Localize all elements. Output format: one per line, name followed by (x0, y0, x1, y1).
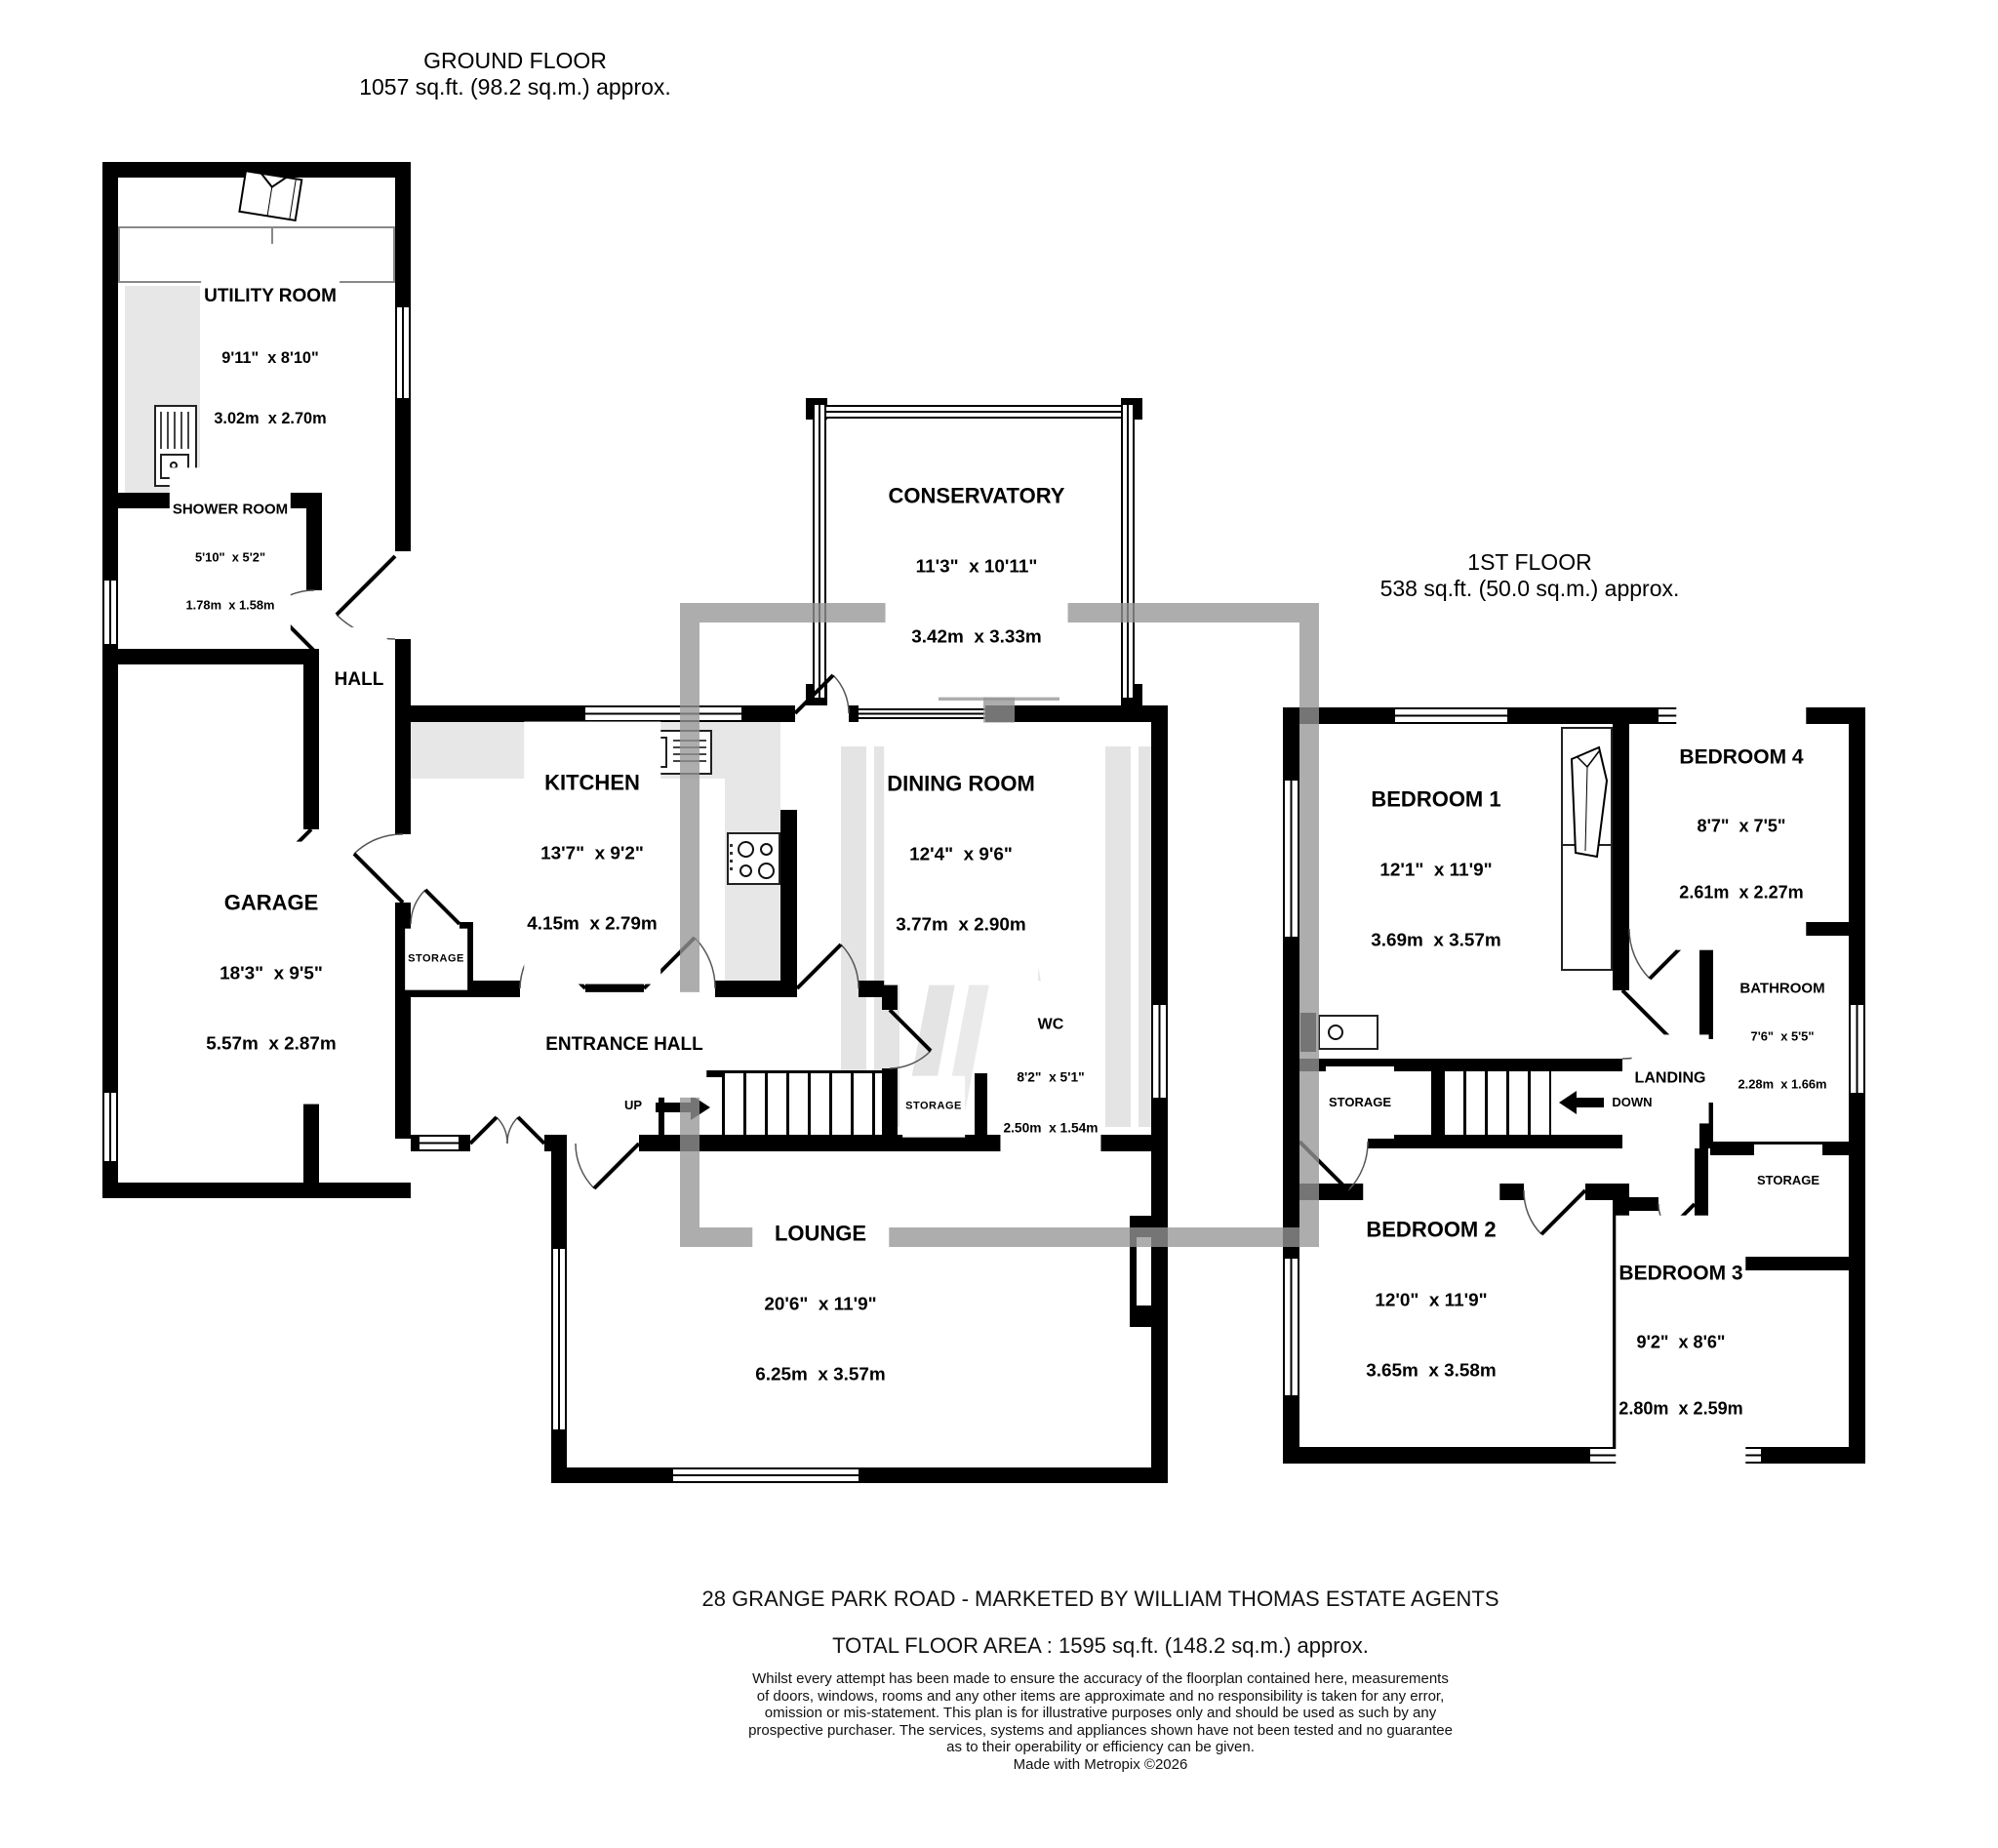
wall (395, 162, 411, 307)
radiator-icon (1300, 1013, 1316, 1052)
room-dims-ft: 12'4" x 9'6" (887, 845, 1035, 866)
wall (849, 705, 859, 722)
room-dims-ft: 8'2" x 5'1" (1003, 1069, 1098, 1085)
room-name: HALL (335, 669, 384, 691)
credit-line: Made with Metropix ©2026 (535, 1756, 1666, 1774)
room-label-bedroom3: BEDROOM 3 9'2" x 8'6" 2.80m x 2.59m (1616, 1216, 1745, 1466)
wall (306, 493, 322, 590)
wall (639, 1135, 985, 1151)
room-name: SHOWER ROOM (173, 502, 288, 518)
up-text: UP (624, 1099, 642, 1113)
wall (1849, 707, 1865, 1005)
room-dims-m: 2.28m x 1.66m (1738, 1078, 1826, 1093)
laundry-shirt-icon (232, 164, 314, 232)
hanging-clothes-icon (1562, 742, 1613, 888)
wall (395, 722, 411, 834)
window (1849, 1005, 1865, 1093)
stairs-down-arrow (1559, 1091, 1606, 1114)
room-dims-m: 2.80m x 2.59m (1618, 1399, 1742, 1420)
first-floor-title: 1ST FLOOR 538 sq.ft. (50.0 sq.m.) approx… (1380, 549, 1680, 602)
room-dims-m: 6.25m x 3.57m (755, 1365, 886, 1386)
disclaimer-line: prospective purchaser. The services, sys… (535, 1722, 1666, 1740)
disclaimer-line: Whilst every attempt has been made to en… (535, 1670, 1666, 1688)
wall (1431, 1059, 1442, 1135)
room-name: BATHROOM (1738, 981, 1826, 997)
wall (102, 1183, 411, 1198)
window (585, 705, 741, 722)
burner (738, 841, 754, 858)
room-name: BEDROOM 4 (1679, 746, 1803, 770)
wall (551, 1429, 567, 1467)
wall (859, 1467, 1168, 1483)
first-floor-area: 538 sq.ft. (50.0 sq.m.) approx. (1380, 576, 1680, 602)
room-label-storage-first-right: STORAGE (1754, 1145, 1822, 1217)
room-label-storage-first-left: STORAGE (1326, 1066, 1394, 1139)
wall (1151, 1098, 1168, 1483)
wall (1761, 1447, 1865, 1464)
floorplan-canvas: GROUND FLOOR 1057 sq.ft. (98.2 sq.m.) ap… (0, 0, 1998, 1848)
room-label-bedroom2: BEDROOM 2 12'0" x 11'9" 3.65m x 3.58m (1363, 1169, 1499, 1431)
room-dims-ft: 7'6" x 5'5" (1738, 1030, 1826, 1045)
wall (544, 1135, 556, 1151)
wall (1283, 1447, 1590, 1464)
window (813, 405, 1135, 419)
room-name: STORAGE (408, 953, 464, 966)
burner (760, 843, 773, 856)
wall (1507, 707, 1658, 724)
wall (551, 1467, 673, 1483)
wall (1283, 707, 1299, 781)
room-label-bedroom1: BEDROOM 1 12'1" x 11'9" 3.69m x 3.57m (1368, 739, 1504, 1001)
wall (459, 1135, 470, 1151)
sink-drainer (673, 740, 706, 767)
room-name: DINING ROOM (887, 772, 1035, 796)
room-label-kitchen: KITCHEN 13'7" x 9'2" 4.15m x 2.79m (524, 722, 660, 984)
room-label-conservatory: CONSERVATORY 11'3" x 10'11" 3.42m x 3.33… (886, 435, 1068, 698)
room-name: KITCHEN (527, 771, 658, 795)
wall (303, 664, 319, 829)
hob-icon (727, 832, 780, 885)
room-name: GARAGE (206, 891, 337, 915)
room-dims-m: 3.02m x 2.70m (204, 410, 337, 428)
room-name: LOUNGE (755, 1222, 886, 1246)
room-name: UTILITY ROOM (204, 286, 337, 307)
room-label-storage-understairs: STORAGE (902, 1076, 965, 1138)
stairs-up-label: UP (621, 1069, 645, 1142)
room-name: STORAGE (905, 1101, 962, 1113)
window (1283, 781, 1299, 937)
wall (715, 981, 797, 997)
burner (758, 863, 775, 879)
window (859, 708, 985, 719)
room-label-wc: WC 8'2" x 5'1" 2.50m x 1.54m (1000, 981, 1100, 1171)
room-name: WC (1003, 1017, 1098, 1034)
disclaimer-line: of doors, windows, rooms and any other i… (535, 1688, 1666, 1706)
stairs-first-treads (1442, 1071, 1551, 1135)
room-dims-m: 3.42m x 3.33m (889, 627, 1065, 649)
window (420, 1135, 459, 1151)
stool-icon (1328, 1024, 1343, 1040)
wall (1283, 707, 1395, 724)
room-dims-ft: 12'1" x 11'9" (1371, 861, 1501, 882)
wall (395, 705, 585, 722)
arrow-shaft (1577, 1098, 1604, 1107)
window (102, 581, 118, 644)
wall (1368, 1135, 1622, 1148)
wall (1283, 937, 1299, 1259)
room-dims-ft: 12'0" x 11'9" (1366, 1291, 1497, 1312)
window (102, 1093, 118, 1161)
room-label-storage-ground: STORAGE (405, 929, 467, 990)
disclaimer-line: omission or mis-statement. This plan is … (535, 1705, 1666, 1722)
first-floor-name: 1ST FLOOR (1380, 549, 1680, 576)
room-dims-ft: 9'2" x 8'6" (1618, 1332, 1742, 1352)
arrow-head (1559, 1091, 1577, 1114)
wall (1613, 724, 1629, 990)
room-dims-m: 2.61m x 2.27m (1679, 883, 1803, 904)
room-name: STORAGE (1329, 1096, 1391, 1110)
wall (882, 1068, 898, 1135)
wall (1629, 1197, 1658, 1211)
ground-floor-title: GROUND FLOOR 1057 sq.ft. (98.2 sq.m.) ap… (359, 48, 671, 100)
wall (741, 705, 795, 722)
room-name: BEDROOM 1 (1371, 787, 1501, 812)
window (1395, 707, 1507, 724)
room-dims-m: 4.15m x 2.79m (527, 914, 658, 936)
stairs-up-arrow (656, 1095, 710, 1120)
room-name: BEDROOM 3 (1618, 1263, 1742, 1286)
room-dims-m: 3.69m x 3.57m (1371, 931, 1501, 952)
wall (102, 162, 118, 581)
arrow-shaft (656, 1103, 691, 1112)
room-dims-ft: 11'3" x 10'11" (889, 557, 1065, 579)
room-label-lounge: LOUNGE 20'6" x 11'9" 6.25m x 3.57m (752, 1173, 889, 1435)
room-label-shower: SHOWER ROOM 5'10" x 5'2" 1.78m x 1.58m (170, 467, 291, 646)
footer: 28 GRANGE PARK ROAD - MARKETED BY WILLIA… (535, 1587, 1666, 1773)
wall (102, 644, 118, 1093)
address-line: 28 GRANGE PARK ROAD - MARKETED BY WILLIA… (535, 1587, 1666, 1612)
wall (882, 981, 898, 1010)
burner (739, 864, 752, 877)
window (813, 405, 826, 698)
total-floor-area: TOTAL FLOOR AREA : 1595 sq.ft. (148.2 sq… (535, 1633, 1666, 1659)
room-label-bedroom4: BEDROOM 4 8'7" x 7'5" 2.61m x 2.27m (1676, 700, 1806, 950)
room-dims-m: 3.65m x 3.58m (1366, 1361, 1497, 1383)
stairs-down-label: DOWN (1609, 1066, 1655, 1139)
wall (780, 810, 797, 981)
room-name: BEDROOM 2 (1366, 1218, 1497, 1242)
hob-controls (730, 844, 733, 873)
window (1151, 1005, 1168, 1098)
room-dims-ft: 18'3" x 9'5" (206, 964, 337, 985)
window (1121, 405, 1135, 698)
room-dims-m: 3.77m x 2.90m (887, 915, 1035, 937)
room-dims-ft: 9'11" x 8'10" (204, 349, 337, 368)
room-label-dining: DINING ROOM 12'4" x 9'6" 3.77m x 2.90m (884, 723, 1038, 985)
room-label-garage: GARAGE 18'3" x 9'5" 5.57m x 2.87m (203, 842, 340, 1105)
window (395, 307, 411, 398)
wall (411, 1135, 420, 1151)
down-text: DOWN (1612, 1096, 1652, 1110)
window (673, 1467, 859, 1483)
room-label-bathroom: BATHROOM 7'6" x 5'5" 2.28m x 1.66m (1735, 946, 1829, 1125)
room-dims-ft: 20'6" x 11'9" (755, 1295, 886, 1316)
wall (551, 1139, 567, 1249)
room-label-hall: HALL (332, 627, 387, 733)
wall (1695, 1148, 1708, 1223)
room-name: STORAGE (1757, 1174, 1819, 1188)
room-dims-m: 2.50m x 1.54m (1003, 1121, 1098, 1137)
room-dims-m: 5.57m x 2.87m (206, 1034, 337, 1056)
ground-floor-name: GROUND FLOOR (359, 48, 671, 74)
stairs-ground-treads (722, 1073, 882, 1135)
window (551, 1249, 567, 1429)
ground-floor-area: 1057 sq.ft. (98.2 sq.m.) approx. (359, 74, 671, 100)
room-dims-m: 1.78m x 1.58m (173, 599, 288, 614)
room-dims-ft: 5'10" x 5'2" (173, 551, 288, 566)
room-dims-ft: 13'7" x 9'2" (527, 844, 658, 865)
dressing-table-icon (1318, 1015, 1379, 1050)
wall (556, 1135, 567, 1151)
arrow-head (691, 1095, 710, 1120)
room-dims-ft: 8'7" x 7'5" (1679, 816, 1803, 836)
wall (102, 649, 319, 664)
wall (1151, 705, 1168, 1005)
wall (975, 1073, 987, 1135)
room-label-utility: UTILITY ROOM 9'11" x 8'10" 3.02m x 2.70m (201, 244, 340, 470)
window (1283, 1259, 1299, 1395)
disclaimer-line: as to their operability or efficiency ca… (535, 1739, 1666, 1756)
wall (1585, 1184, 1629, 1200)
sink-drainer (160, 412, 191, 449)
room-name: CONSERVATORY (889, 484, 1065, 508)
wall (395, 398, 411, 551)
wall (1130, 1216, 1137, 1327)
room-name: ENTRANCE HALL (545, 1034, 703, 1056)
